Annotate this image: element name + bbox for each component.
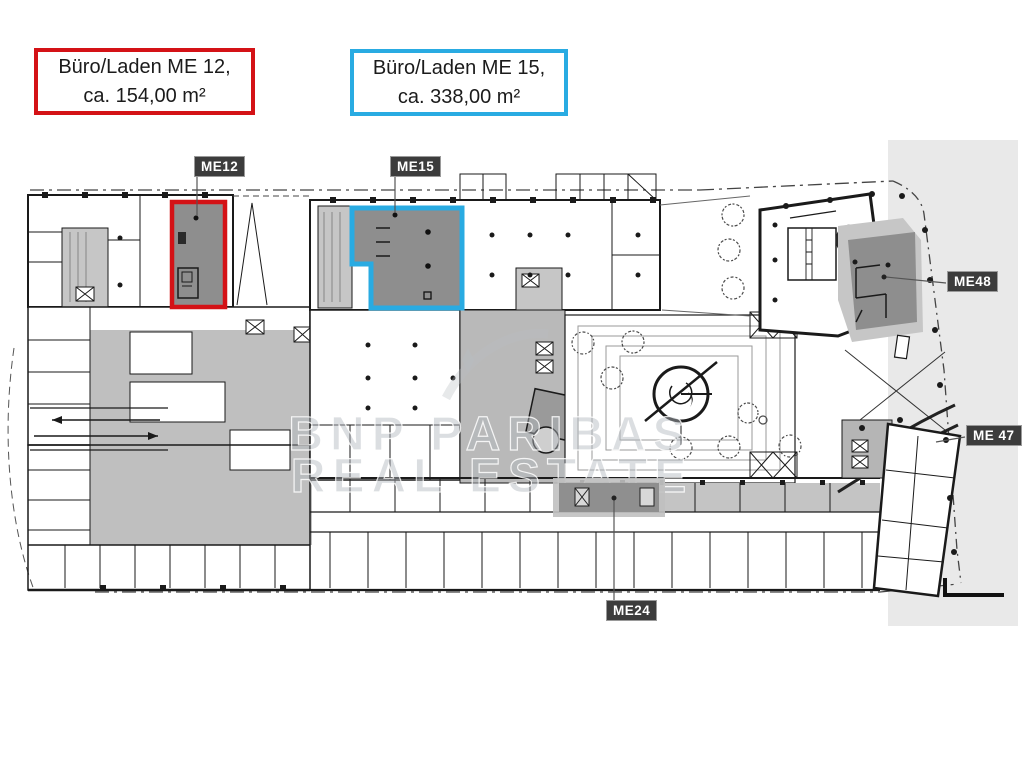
plan-structure: [8, 174, 1004, 596]
legend-me12-line1: Büro/Laden ME 12,: [38, 53, 251, 82]
legend-box-me15: Büro/Laden ME 15, ca. 338,00 m²: [350, 49, 568, 116]
legend-me15-line2: ca. 338,00 m²: [354, 83, 564, 112]
legend-box-me12: Büro/Laden ME 12, ca. 154,00 m²: [34, 48, 255, 115]
badge-me12: ME12: [194, 156, 245, 177]
badge-me47: ME 47: [966, 425, 1022, 446]
zone-me24: [553, 478, 665, 517]
zone-me12: [172, 202, 225, 307]
badge-me24: ME24: [606, 600, 657, 621]
floorplan-page: { "legend": { "me12": { "line1": "Büro/L…: [0, 0, 1024, 768]
legend-me12-line2: ca. 154,00 m²: [38, 82, 251, 111]
zone-me15: [352, 208, 462, 308]
badge-me48: ME48: [947, 271, 998, 292]
legend-me15-line1: Büro/Laden ME 15,: [354, 54, 564, 83]
badge-me15: ME15: [390, 156, 441, 177]
